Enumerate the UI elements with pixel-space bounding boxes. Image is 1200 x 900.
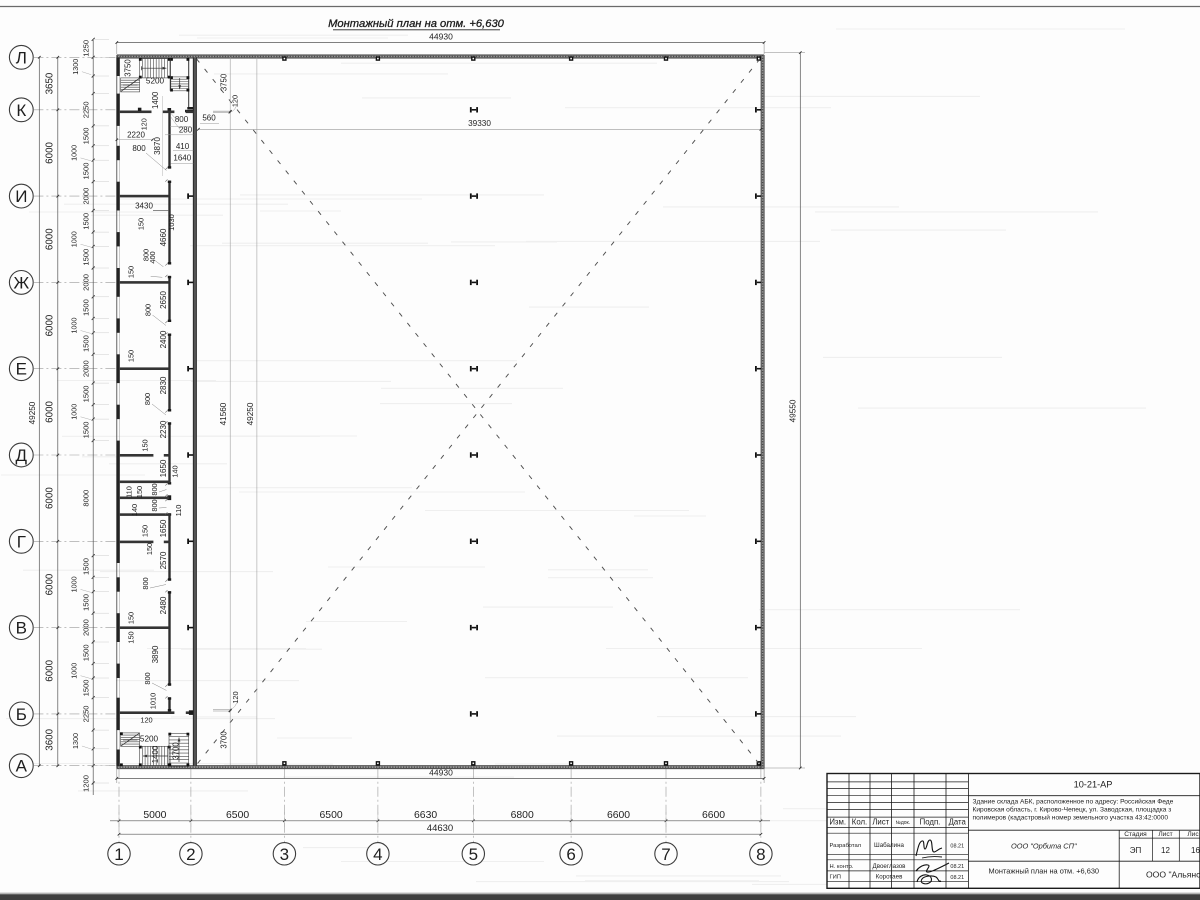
svg-text:49250: 49250 xyxy=(28,401,37,424)
svg-text:5: 5 xyxy=(469,845,478,864)
svg-text:Н. контр.: Н. контр. xyxy=(830,864,854,870)
svg-text:140: 140 xyxy=(130,504,139,516)
svg-text:150: 150 xyxy=(127,266,136,278)
svg-text:08.21: 08.21 xyxy=(950,875,964,881)
svg-text:2000: 2000 xyxy=(82,360,91,377)
svg-text:2400: 2400 xyxy=(159,330,168,348)
svg-text:Л: Л xyxy=(16,48,27,67)
svg-text:150: 150 xyxy=(135,486,144,498)
svg-text:1: 1 xyxy=(114,845,123,864)
svg-text:полимеров (кадастровый номер з: полимеров (кадастровый номер земельного … xyxy=(973,814,1169,822)
svg-text:2220: 2220 xyxy=(127,131,145,140)
svg-text:6: 6 xyxy=(566,845,575,864)
svg-text:1650: 1650 xyxy=(159,519,168,537)
svg-text:Разработал: Разработал xyxy=(830,843,862,849)
svg-text:6630: 6630 xyxy=(414,810,437,821)
svg-text:3430: 3430 xyxy=(135,202,153,211)
svg-text:1030: 1030 xyxy=(167,214,176,230)
svg-text:1500: 1500 xyxy=(82,299,91,316)
svg-text:Лист: Лист xyxy=(1158,831,1172,838)
svg-text:3700: 3700 xyxy=(219,731,228,749)
svg-text:800: 800 xyxy=(150,499,159,511)
svg-text:2000: 2000 xyxy=(82,619,91,636)
svg-text:Б: Б xyxy=(16,705,27,724)
svg-text:6000: 6000 xyxy=(45,400,56,422)
svg-text:1300: 1300 xyxy=(71,59,80,75)
svg-text:1250: 1250 xyxy=(82,40,91,57)
svg-text:Подп.: Подп. xyxy=(920,818,941,827)
svg-text:Г: Г xyxy=(17,532,26,551)
svg-text:ООО "Альянс: ООО "Альянс xyxy=(1146,870,1200,880)
svg-text:44630: 44630 xyxy=(427,823,453,834)
svg-text:560: 560 xyxy=(202,114,216,123)
svg-text:Монтажный план на отм. +6,630: Монтажный план на отм. +6,630 xyxy=(989,867,1100,876)
svg-text:1000: 1000 xyxy=(70,145,79,161)
svg-text:6000: 6000 xyxy=(45,314,56,336)
svg-text:1000: 1000 xyxy=(70,404,79,420)
svg-text:6000: 6000 xyxy=(45,573,56,595)
svg-text:В: В xyxy=(16,619,27,638)
svg-text:6000: 6000 xyxy=(45,659,56,681)
svg-text:2250: 2250 xyxy=(82,705,91,722)
svg-text:2: 2 xyxy=(186,845,195,864)
svg-text:3750: 3750 xyxy=(219,73,228,91)
svg-text:Ж: Ж xyxy=(13,273,29,292)
svg-text:3700: 3700 xyxy=(171,742,180,760)
svg-text:1500: 1500 xyxy=(82,249,91,266)
svg-text:1000: 1000 xyxy=(70,231,79,247)
svg-text:1000: 1000 xyxy=(70,576,79,592)
svg-text:800: 800 xyxy=(175,115,189,124)
svg-text:Кировская область, г. Кирово-Ч: Кировская область, г. Кирово-Чепецк, ул.… xyxy=(973,806,1172,814)
svg-text:39330: 39330 xyxy=(468,119,491,128)
svg-text:7: 7 xyxy=(661,845,670,864)
svg-text:8000: 8000 xyxy=(82,490,91,507)
svg-text:1500: 1500 xyxy=(82,558,91,575)
svg-text:Шабалина: Шабалина xyxy=(874,842,904,849)
svg-text:И: И xyxy=(15,187,27,206)
svg-text:150: 150 xyxy=(127,612,136,624)
svg-text:16: 16 xyxy=(1191,846,1200,855)
svg-text:8: 8 xyxy=(756,845,765,864)
svg-text:1500: 1500 xyxy=(82,213,91,230)
svg-text:120: 120 xyxy=(231,95,240,107)
svg-text:К: К xyxy=(16,101,26,120)
svg-text:800: 800 xyxy=(141,577,150,589)
svg-text:1000: 1000 xyxy=(70,318,79,334)
svg-text:4660: 4660 xyxy=(159,228,168,246)
svg-text:6600: 6600 xyxy=(607,810,630,821)
svg-text:Е: Е xyxy=(16,360,27,379)
svg-text:150: 150 xyxy=(127,631,136,643)
svg-text:2000: 2000 xyxy=(82,188,91,205)
svg-text:2230: 2230 xyxy=(159,420,168,438)
svg-text:3650: 3650 xyxy=(45,72,56,94)
svg-text:Дата: Дата xyxy=(949,818,967,827)
svg-text:150: 150 xyxy=(136,218,145,230)
svg-text:08.21: 08.21 xyxy=(950,864,964,870)
svg-text:1640: 1640 xyxy=(173,154,191,163)
svg-text:1500: 1500 xyxy=(82,644,91,661)
svg-text:1500: 1500 xyxy=(82,335,91,352)
svg-text:6000: 6000 xyxy=(45,487,56,509)
svg-text:3600: 3600 xyxy=(45,728,56,750)
svg-text:150: 150 xyxy=(145,543,154,555)
svg-text:2000: 2000 xyxy=(82,274,91,291)
svg-text:1200: 1200 xyxy=(82,775,91,792)
svg-text:3870: 3870 xyxy=(153,137,162,155)
svg-text:Кол.: Кол. xyxy=(852,818,867,827)
svg-text:1300: 1300 xyxy=(71,733,80,749)
svg-text:1500: 1500 xyxy=(82,421,91,438)
svg-text:6000: 6000 xyxy=(45,228,56,250)
svg-text:1400: 1400 xyxy=(151,91,160,109)
svg-text:800: 800 xyxy=(144,304,153,316)
svg-text:5200: 5200 xyxy=(140,735,159,744)
svg-text:44930: 44930 xyxy=(429,32,453,42)
svg-text:800: 800 xyxy=(132,144,146,153)
svg-text:10-21-АР: 10-21-АР xyxy=(1074,780,1113,790)
svg-text:5000: 5000 xyxy=(143,810,166,821)
svg-text:1500: 1500 xyxy=(82,679,91,696)
svg-text:120: 120 xyxy=(140,715,152,724)
svg-text:120: 120 xyxy=(231,691,240,703)
svg-text:Изм.: Изм. xyxy=(829,818,846,827)
svg-text:150: 150 xyxy=(141,525,150,537)
svg-text:Лис: Лис xyxy=(1187,831,1199,838)
svg-text:№док.: №док. xyxy=(895,820,910,826)
svg-text:Лист: Лист xyxy=(872,818,889,827)
svg-text:110: 110 xyxy=(125,486,134,498)
svg-text:1650: 1650 xyxy=(159,459,168,477)
svg-text:Монтажный план на отм. +6,630: Монтажный план на отм. +6,630 xyxy=(328,18,505,30)
svg-text:800: 800 xyxy=(143,672,152,684)
svg-text:Д: Д xyxy=(16,446,28,465)
svg-text:150: 150 xyxy=(141,439,150,451)
svg-text:6000: 6000 xyxy=(45,141,56,163)
svg-text:140: 140 xyxy=(171,465,180,477)
svg-text:1500: 1500 xyxy=(82,594,91,611)
svg-text:120: 120 xyxy=(140,118,149,130)
svg-text:410: 410 xyxy=(176,142,190,151)
svg-text:800: 800 xyxy=(143,393,152,405)
svg-text:6500: 6500 xyxy=(226,810,249,821)
svg-text:2480: 2480 xyxy=(159,596,168,614)
svg-text:5200: 5200 xyxy=(146,77,165,86)
svg-text:ГИП: ГИП xyxy=(830,875,841,881)
svg-text:3890: 3890 xyxy=(151,645,160,663)
svg-text:400: 400 xyxy=(148,251,157,263)
svg-text:1400: 1400 xyxy=(151,745,160,763)
svg-text:2570: 2570 xyxy=(159,551,168,569)
svg-text:41560: 41560 xyxy=(219,402,228,425)
svg-text:6800: 6800 xyxy=(511,810,534,821)
svg-text:12: 12 xyxy=(1161,846,1170,855)
svg-text:1500: 1500 xyxy=(82,127,91,144)
svg-text:ООО "Орбита СП": ООО "Орбита СП" xyxy=(1011,842,1077,851)
svg-text:2250: 2250 xyxy=(82,101,91,118)
svg-text:6600: 6600 xyxy=(702,810,725,821)
svg-text:Здание склада АБК, расположенн: Здание склада АБК, расположенное по адре… xyxy=(973,798,1174,806)
svg-text:Коротаев: Коротаев xyxy=(876,874,903,881)
svg-text:3750: 3750 xyxy=(124,59,133,77)
svg-text:110: 110 xyxy=(174,505,183,517)
svg-text:Двоеглазов: Двоеглазов xyxy=(873,863,907,870)
svg-text:49550: 49550 xyxy=(789,399,798,422)
svg-text:800: 800 xyxy=(150,483,159,495)
svg-text:1000: 1000 xyxy=(70,663,79,679)
svg-text:А: А xyxy=(16,757,28,776)
svg-text:ЭП: ЭП xyxy=(1130,846,1142,855)
svg-text:150: 150 xyxy=(127,350,136,362)
svg-text:6500: 6500 xyxy=(320,810,343,821)
svg-text:Стадия: Стадия xyxy=(1124,831,1147,838)
svg-text:1500: 1500 xyxy=(82,163,91,180)
svg-text:08.21: 08.21 xyxy=(950,843,964,849)
svg-text:4: 4 xyxy=(373,845,382,864)
svg-text:2650: 2650 xyxy=(159,291,168,309)
svg-text:1500: 1500 xyxy=(82,385,91,402)
svg-text:49250: 49250 xyxy=(246,402,255,425)
svg-text:2830: 2830 xyxy=(159,376,168,394)
svg-text:1010: 1010 xyxy=(149,693,158,709)
svg-text:3: 3 xyxy=(280,845,289,864)
